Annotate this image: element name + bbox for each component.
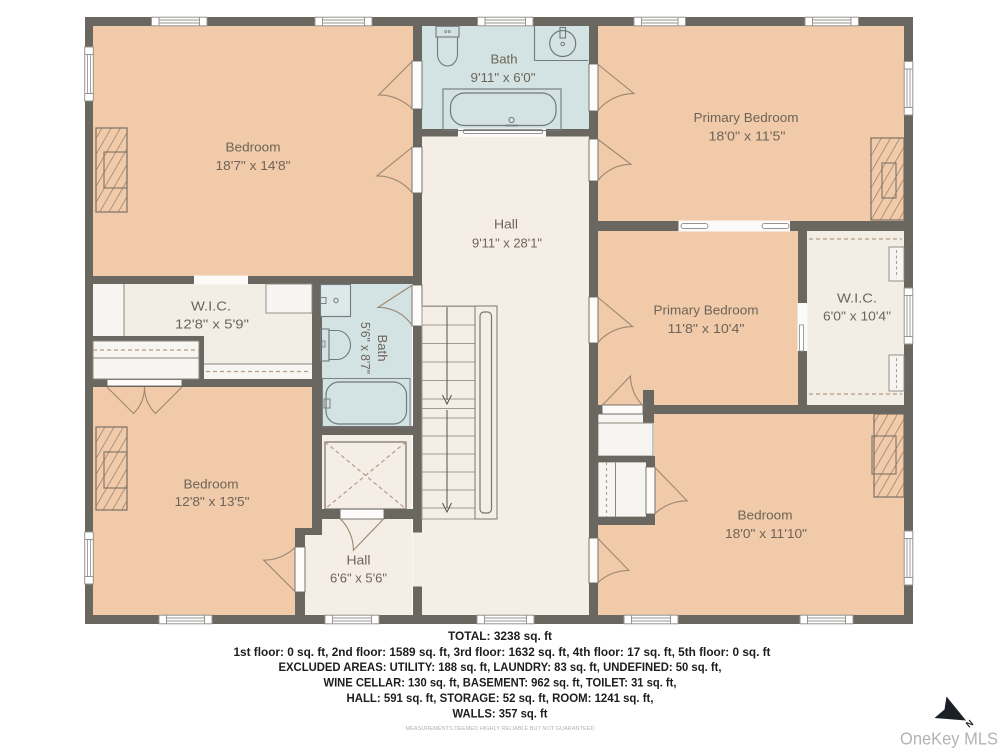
svg-text:12'8" x 5'9": 12'8" x 5'9" [175,317,249,332]
svg-text:Primary Bedroom: Primary Bedroom [694,110,799,125]
svg-text:HALL: 591 sq. ft, STORAGE: 52: HALL: 591 sq. ft, STORAGE: 52 sq. ft, RO… [347,693,654,705]
svg-text:Bedroom: Bedroom [184,477,239,492]
svg-text:6'0" x 10'4": 6'0" x 10'4" [823,309,891,324]
svg-text:Bedroom: Bedroom [738,508,793,523]
svg-text:9'11" x 6'0": 9'11" x 6'0" [471,70,536,85]
svg-text:Bath: Bath [375,335,390,362]
svg-text:Hall: Hall [494,217,518,232]
svg-text:18'7" x 14'8": 18'7" x 14'8" [216,158,291,173]
svg-text:W.I.C.: W.I.C. [837,291,877,306]
svg-text:9'11" x 28'1": 9'11" x 28'1" [472,236,542,251]
svg-text:W.I.C.: W.I.C. [191,299,231,314]
svg-text:1st floor: 0 sq. ft, 2nd floor: 1st floor: 0 sq. ft, 2nd floor: 1589 sq.… [234,645,771,659]
svg-text:6'6" x 5'6": 6'6" x 5'6" [330,571,387,586]
svg-text:Bedroom: Bedroom [226,140,281,155]
svg-text:Bath: Bath [491,52,518,67]
svg-text:Hall: Hall [347,553,371,568]
svg-text:12'8" x 13'5": 12'8" x 13'5" [175,494,250,509]
svg-text:TOTAL: 3238 sq. ft: TOTAL: 3238 sq. ft [448,629,552,643]
svg-text:OneKey MLS: OneKey MLS [900,729,998,749]
svg-text:WALLS: 357 sq. ft: WALLS: 357 sq. ft [453,708,548,720]
svg-text:WINE CELLAR: 130 sq. ft, BASEM: WINE CELLAR: 130 sq. ft, BASEMENT: 962 s… [324,678,677,690]
svg-text:11'8" x 10'4": 11'8" x 10'4" [668,321,745,336]
svg-text:Primary Bedroom: Primary Bedroom [654,303,759,318]
svg-text:18'0" x 11'5": 18'0" x 11'5" [709,129,786,144]
svg-text:EXCLUDED AREAS: UTILITY: 188 s: EXCLUDED AREAS: UTILITY: 188 sq. ft, LAU… [279,662,722,674]
svg-text:5'6" x 8'7": 5'6" x 8'7" [358,322,373,374]
svg-text:MEASUREMENTS DEEMED HIGHLY REL: MEASUREMENTS DEEMED HIGHLY RELIABLE BUT … [406,726,595,732]
svg-text:18'0" x 11'10": 18'0" x 11'10" [725,526,807,541]
